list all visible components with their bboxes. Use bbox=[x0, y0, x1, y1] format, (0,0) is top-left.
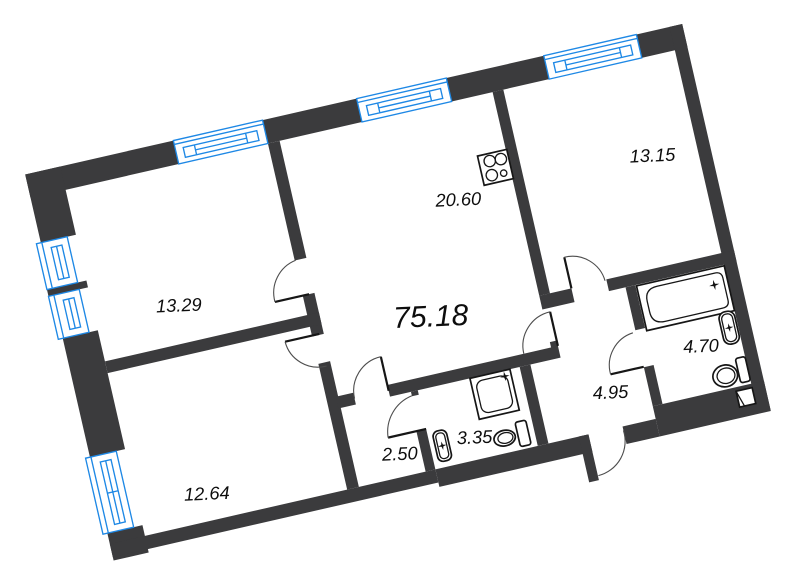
svg-text:75.18: 75.18 bbox=[392, 299, 469, 335]
svg-text:13.15: 13.15 bbox=[629, 144, 676, 167]
svg-text:4.70: 4.70 bbox=[683, 334, 720, 357]
svg-text:4.95: 4.95 bbox=[592, 381, 629, 404]
svg-text:12.64: 12.64 bbox=[183, 482, 230, 505]
svg-text:3.35: 3.35 bbox=[456, 426, 493, 449]
svg-text:13.29: 13.29 bbox=[155, 294, 202, 317]
svg-text:20.60: 20.60 bbox=[434, 188, 482, 211]
svg-text:2.50: 2.50 bbox=[381, 442, 419, 465]
